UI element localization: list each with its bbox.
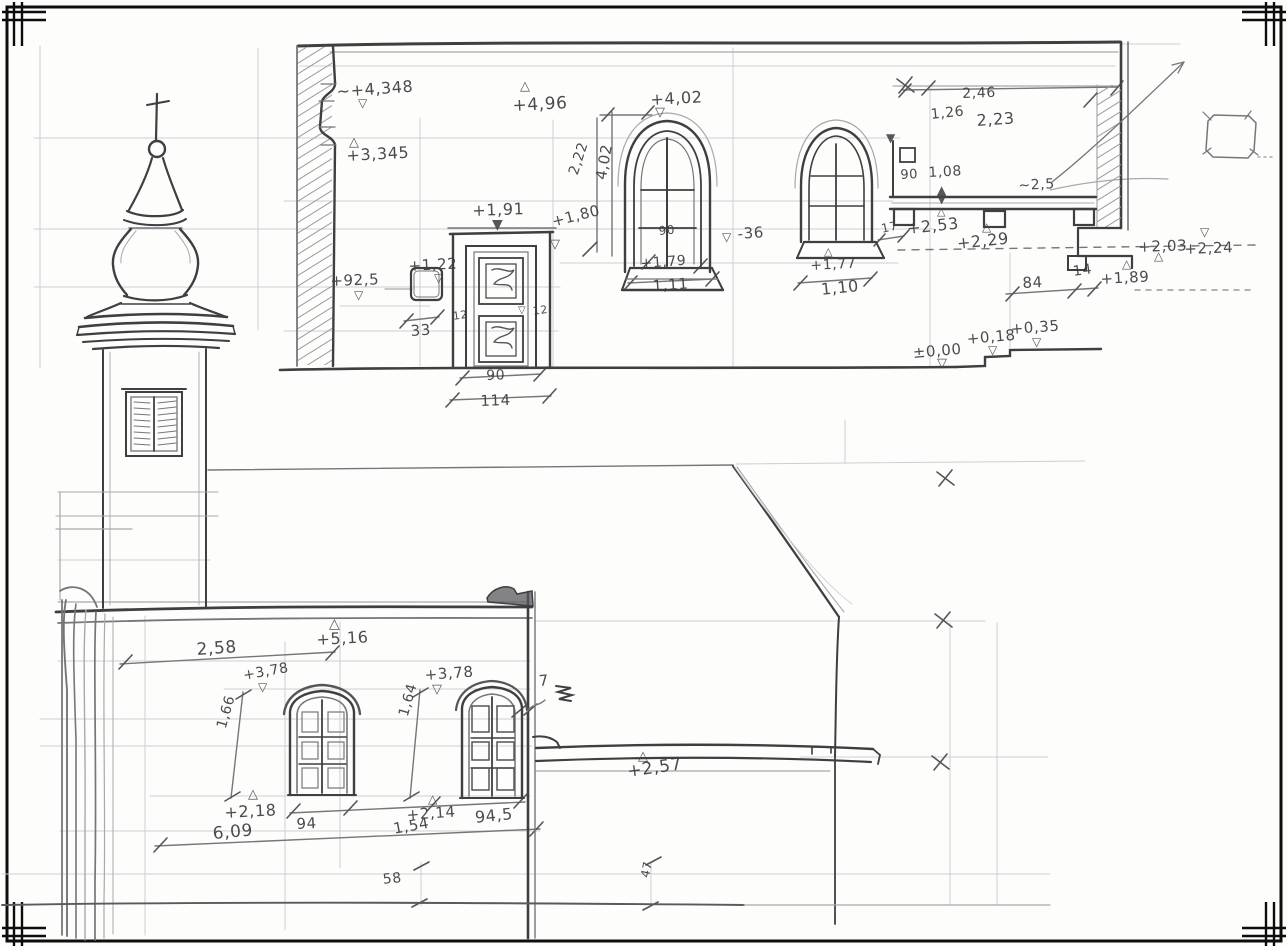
echo-lines <box>58 52 1168 771</box>
sketch-page: ~+4,348+4,96+3,345+1,91+1,802,224,02+4,0… <box>0 0 1288 948</box>
upper-elevation <box>280 42 1258 370</box>
lower-elevation <box>2 466 1050 940</box>
page-frame <box>7 7 1281 941</box>
construction-lines <box>2 44 1180 935</box>
sketch-drawing <box>0 0 1288 948</box>
tower <box>56 94 235 608</box>
dimension-ticks <box>119 77 1123 910</box>
